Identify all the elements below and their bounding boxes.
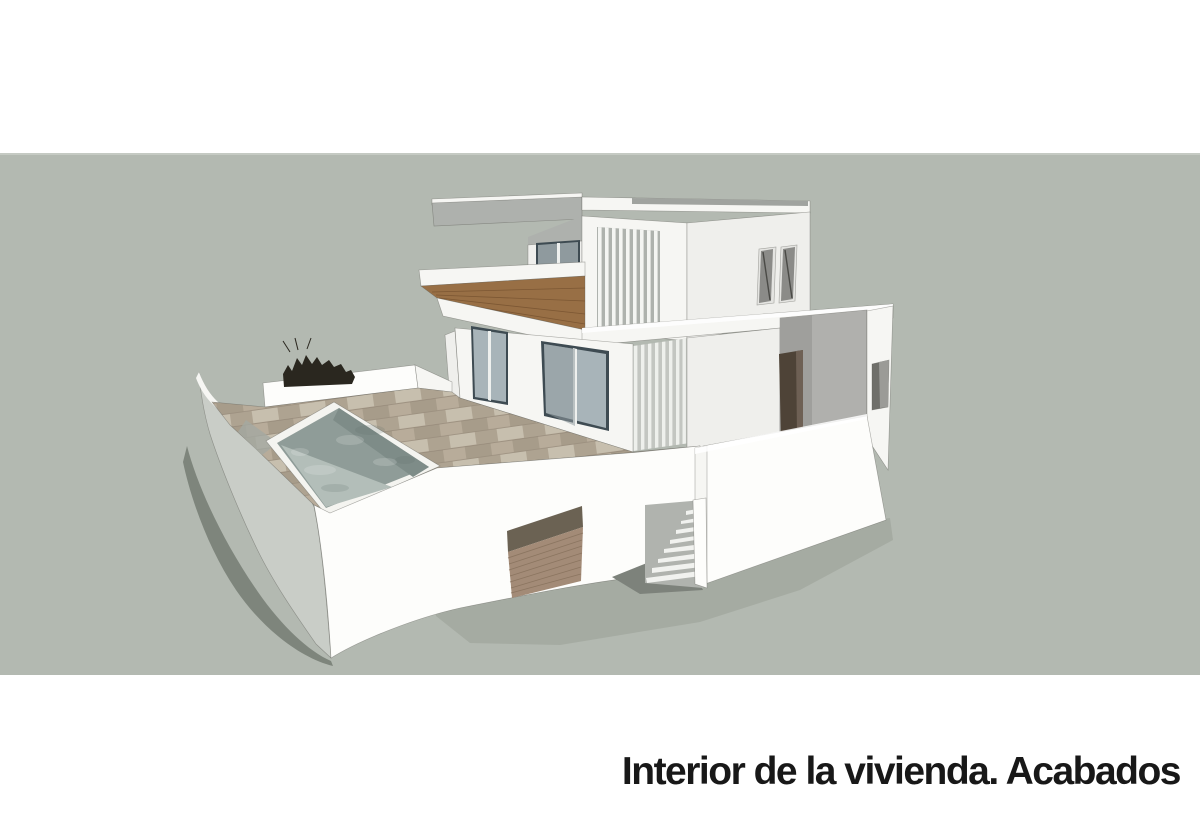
house-render bbox=[0, 0, 1200, 830]
louver-screen-upper bbox=[597, 227, 660, 335]
right-volume-window-pane bbox=[879, 360, 889, 408]
door-2-pane-shade bbox=[544, 344, 575, 426]
entrance-door-leaf bbox=[796, 350, 803, 435]
louver-screen-lower bbox=[633, 338, 687, 451]
door-1-mullion bbox=[488, 331, 491, 401]
stair-stringer-wall bbox=[693, 498, 707, 588]
sliding-glass-door-1 bbox=[471, 326, 508, 405]
document-page: Interior de la vivienda. Acabados bbox=[0, 0, 1200, 830]
band-top-line bbox=[0, 153, 1200, 155]
caption-title: Interior de la vivienda. Acabados bbox=[622, 752, 1180, 791]
sliding-glass-door-2 bbox=[541, 341, 609, 431]
louver-slats bbox=[598, 227, 658, 335]
